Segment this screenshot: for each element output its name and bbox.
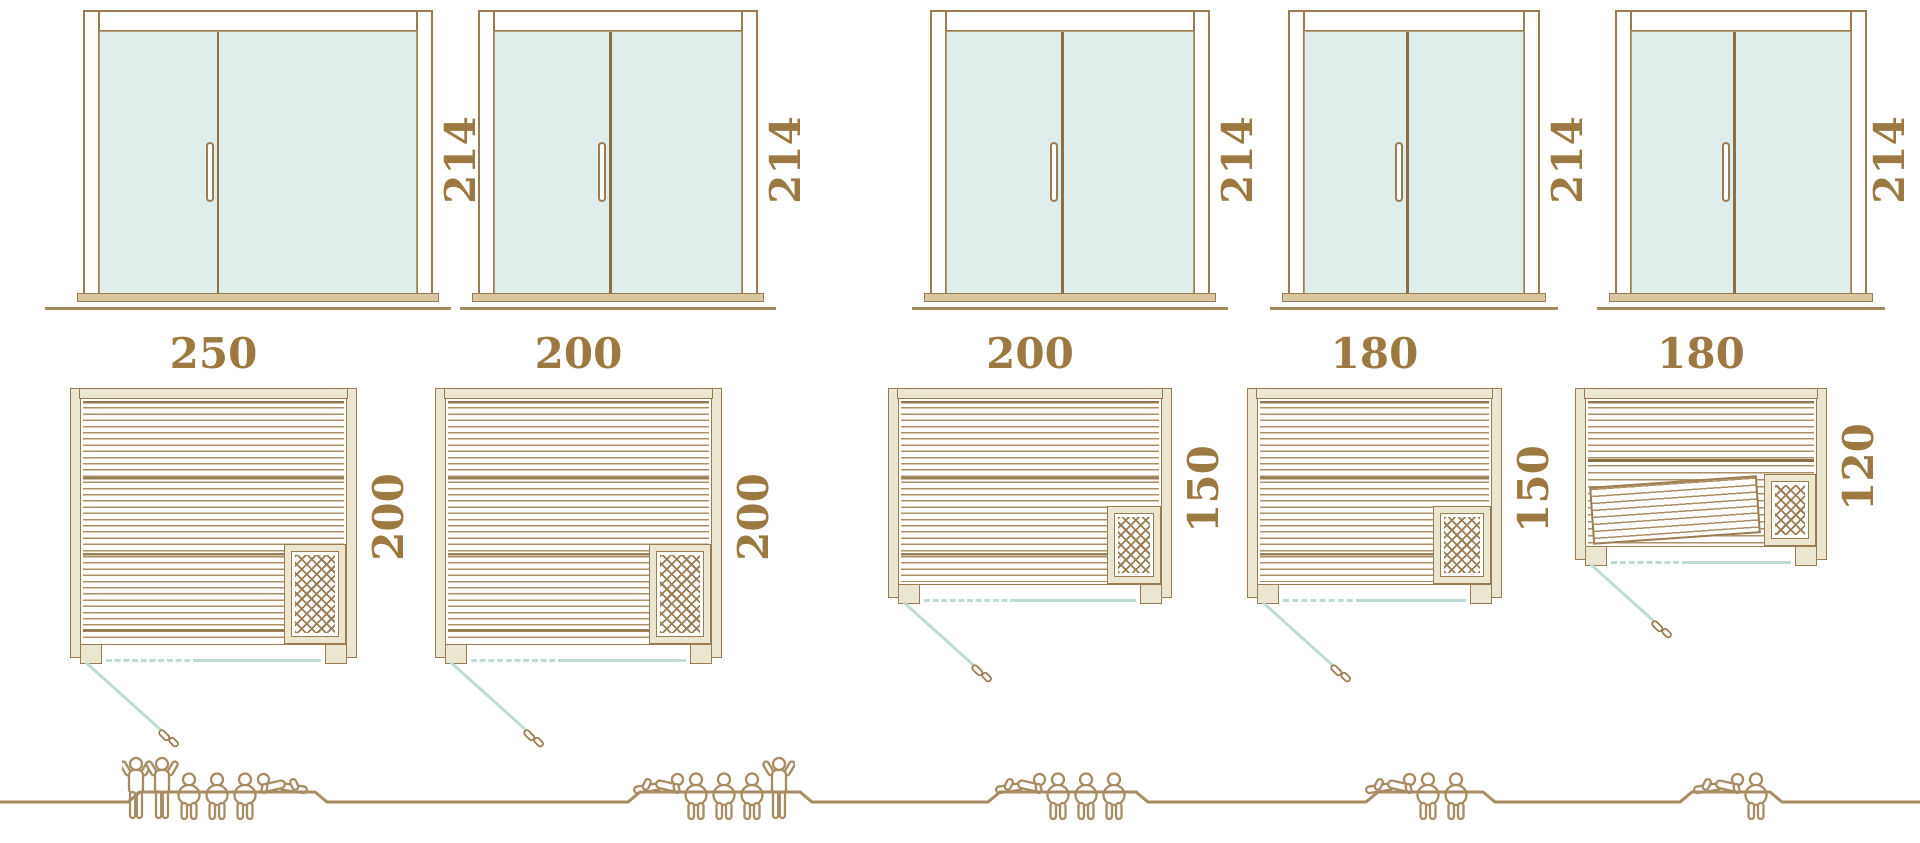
corner-post-left (445, 644, 467, 664)
glass-front (99, 31, 417, 294)
heater-icon (1771, 481, 1809, 539)
plan-interior (1257, 398, 1492, 585)
glass-front-line (564, 659, 686, 662)
door-leaf-divider (1061, 32, 1063, 293)
plan-width-dimension: 200 (888, 330, 1172, 378)
door-frame-post-right (1523, 10, 1540, 302)
glass-front-line (199, 659, 321, 662)
plan-interior (445, 398, 712, 645)
heater-icon (1440, 513, 1484, 577)
door-height-dimension: 214 (1544, 100, 1592, 220)
glass-front (1304, 31, 1524, 294)
door-frame-post-left (1288, 10, 1305, 302)
door-sill (77, 293, 439, 302)
plan-wall-right (1816, 388, 1827, 560)
door-leaf-divider (609, 32, 611, 293)
heater-niche (1107, 506, 1161, 584)
plan-wall-right (1161, 388, 1172, 598)
plan-wall-right (346, 388, 357, 658)
floor-plan-5 (1575, 388, 1827, 560)
tilted-bench (1589, 475, 1761, 545)
heater-niche (284, 544, 346, 644)
heater-lattice (1118, 517, 1150, 573)
door-lintel (98, 10, 418, 32)
door-leaf-divider (1733, 32, 1735, 293)
door-handle-icon (1722, 142, 1730, 202)
corner-post-right (690, 644, 712, 664)
glass-front-line (1362, 599, 1466, 602)
corner-post-right (1795, 546, 1817, 566)
corner-post-left (1257, 584, 1279, 604)
door-frame-post-left (1615, 10, 1632, 302)
plan-width-dimension: 200 (435, 330, 722, 378)
door-sill (1282, 293, 1546, 302)
glass-front-line (1688, 561, 1791, 564)
swing-handle-icon (1649, 617, 1675, 643)
door-handle-icon (598, 142, 606, 202)
door-elevation-1 (83, 10, 433, 302)
heater-lattice (1775, 485, 1805, 535)
plan-interior (1585, 398, 1817, 547)
door-handle-icon (1050, 142, 1058, 202)
plan-depth-dimension: 200 (365, 457, 413, 577)
plan-wall-right (1491, 388, 1502, 598)
floor-line (1270, 307, 1558, 310)
heater-icon (1114, 513, 1154, 577)
open-door-dashed-line (1283, 599, 1362, 602)
heater-niche (1433, 506, 1491, 584)
plan-width-dimension: 250 (70, 330, 357, 378)
heater-niche (1764, 474, 1816, 546)
plan-depth-dimension: 120 (1835, 407, 1883, 527)
door-lintel (1630, 10, 1852, 32)
glass-front (946, 31, 1194, 294)
floor-line (1597, 307, 1885, 310)
sauna-size-diagram: 214 250 200 214 200 (0, 0, 1920, 843)
swing-handle-icon (521, 726, 547, 752)
heater-niche (649, 544, 711, 644)
door-leaf-divider (1406, 32, 1408, 293)
door-elevation-2 (478, 10, 758, 302)
floor-plan-4 (1247, 388, 1502, 598)
ground-path (0, 792, 1920, 802)
heater-icon (656, 551, 704, 637)
corner-post-right (1140, 584, 1162, 604)
heater-lattice (295, 555, 335, 633)
door-frame-post-left (478, 10, 495, 302)
plan-wall-right (711, 388, 722, 658)
corner-post-left (80, 644, 102, 664)
heater-lattice (660, 555, 700, 633)
door-frame-post-left (83, 10, 100, 302)
floor-plan-3 (888, 388, 1172, 598)
glass-front (1631, 31, 1851, 294)
door-sill (1609, 293, 1873, 302)
plan-interior (898, 398, 1162, 585)
swing-handle-icon (156, 726, 182, 752)
plan-width-dimension: 180 (1247, 330, 1502, 378)
plan-depth-dimension: 150 (1180, 429, 1228, 549)
swing-handle-icon (969, 661, 995, 687)
floor-plan-2 (435, 388, 722, 658)
plan-depth-dimension: 200 (730, 457, 778, 577)
door-elevation-3 (930, 10, 1210, 302)
door-lintel (945, 10, 1195, 32)
floor-line (45, 307, 451, 310)
open-door-dashed-line (924, 599, 1016, 602)
plan-interior (80, 398, 347, 645)
bench-slats (1588, 401, 1814, 462)
door-handle-icon (206, 142, 214, 202)
plan-width-dimension: 180 (1575, 330, 1827, 378)
floor-line (912, 307, 1228, 310)
heater-icon (291, 551, 339, 637)
corner-post-left (898, 584, 920, 604)
ground-line (0, 782, 1920, 822)
door-frame-post-left (930, 10, 947, 302)
door-elevation-4 (1288, 10, 1540, 302)
door-frame-post-right (416, 10, 433, 302)
open-door-dashed-line (471, 659, 564, 662)
open-door-dashed-line (1611, 561, 1688, 564)
glass-front-line (1016, 599, 1136, 602)
door-height-dimension: 214 (1214, 100, 1262, 220)
corner-post-right (325, 644, 347, 664)
heater-lattice (1444, 517, 1480, 573)
floor-line (460, 307, 776, 310)
door-frame-post-right (741, 10, 758, 302)
door-leaf-divider (217, 32, 219, 293)
door-handle-icon (1395, 142, 1403, 202)
door-height-dimension: 214 (762, 100, 810, 220)
door-height-dimension: 214 (1866, 100, 1914, 220)
floor-plan-1 (70, 388, 357, 658)
door-lintel (1303, 10, 1525, 32)
plan-depth-dimension: 150 (1510, 429, 1558, 549)
corner-post-right (1470, 584, 1492, 604)
open-door-dashed-line (106, 659, 199, 662)
corner-post-left (1585, 546, 1607, 566)
swing-handle-icon (1328, 661, 1354, 687)
door-elevation-5 (1615, 10, 1867, 302)
glass-front (494, 31, 742, 294)
door-lintel (493, 10, 743, 32)
door-sill (924, 293, 1216, 302)
door-sill (472, 293, 764, 302)
door-frame-post-right (1193, 10, 1210, 302)
